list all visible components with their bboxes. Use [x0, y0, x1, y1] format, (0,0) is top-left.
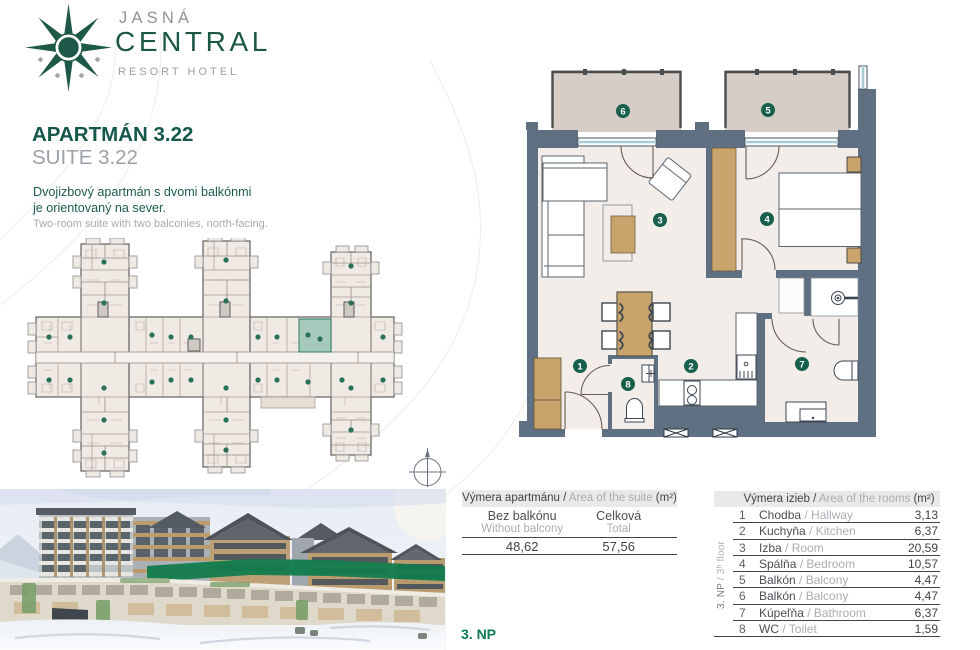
svg-text:5: 5	[765, 106, 771, 117]
svg-text:4: 4	[764, 215, 770, 226]
svg-text:7: 7	[799, 360, 804, 371]
svg-text:3: 3	[657, 216, 662, 227]
svg-text:1: 1	[577, 362, 583, 373]
svg-text:8: 8	[625, 380, 630, 391]
svg-text:6: 6	[620, 107, 625, 118]
svg-text:2: 2	[688, 362, 693, 373]
